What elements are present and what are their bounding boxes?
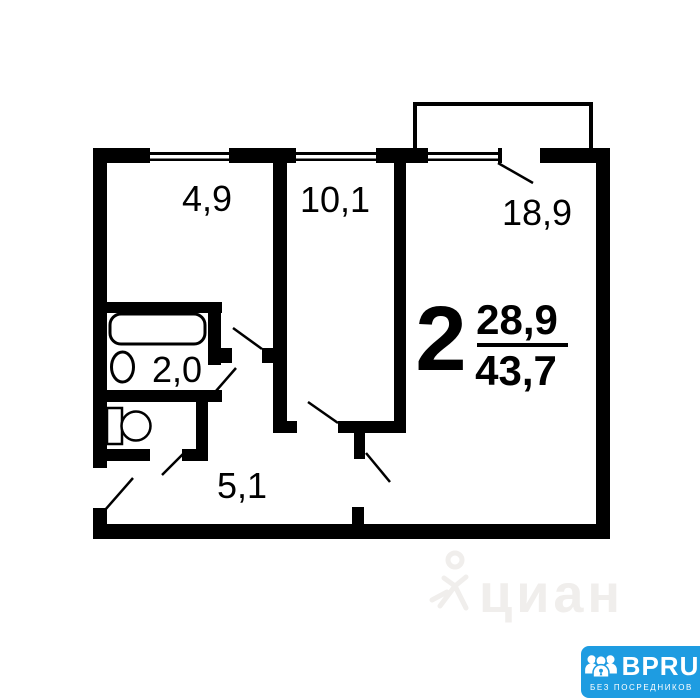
flat-type-number: 2 [415,288,466,390]
balcony-outline [415,104,591,150]
toilet-bowl [122,412,151,441]
living-area-value: 28,9 [476,296,558,343]
wall-rooms-divider [394,163,406,433]
wall-bathroom-bottom [103,390,222,402]
wall-toilet-bottom-left [103,449,150,461]
swing-balcony-door [498,163,533,183]
floorplan-image: 4,9 10,1 18,9 2,0 5,1 2 28,9 43,7 циан [0,0,700,700]
swing-kitchen-door [233,328,262,349]
room-area-large-room: 18,9 [502,192,572,233]
wall-room-small-bottom-left [273,421,297,433]
room-area-kitchen: 4,9 [182,178,232,219]
watermark-person-icon [432,553,466,608]
room-area-bathroom: 2,0 [152,349,202,390]
wall-bathroom-right [208,302,221,365]
swing-room-large-door [366,453,390,482]
swing-toilet-door [162,453,184,475]
brand-row: BPRU [584,652,700,680]
toilet-tank [107,408,122,444]
jamb-bathroom [221,348,232,363]
flat-summary: 2 28,9 43,7 [415,288,568,394]
brand-people-icon [584,652,618,680]
bathtub [110,314,205,344]
room-area-hallway: 5,1 [217,465,267,506]
wall-outer-bottom [93,524,610,539]
brand-badge: BPRU БЕЗ ПОСРЕДНИКОВ [581,646,700,698]
wall-kitchen-room [273,163,287,423]
wall-toilet-bottom-right [182,449,208,461]
swing-bathroom-door [216,368,236,391]
swing-room-small-door [308,402,338,423]
wall-outer-right [596,148,610,539]
floorplan-drawing: 4,9 10,1 18,9 2,0 5,1 2 28,9 43,7 циан [0,0,700,700]
watermark-text: циан [479,564,624,624]
watermark: циан [432,553,624,624]
jamb-corridor-right [262,348,273,363]
sink [112,352,134,382]
brand-title: BPRU [622,653,700,679]
wall-hall-stub-upper [354,433,365,459]
swing-entrance-door [105,478,133,510]
balcony-door-opening [502,148,540,163]
total-area-value: 43,7 [475,347,557,394]
brand-subtitle: БЕЗ ПОСРЕДНИКОВ [590,683,693,692]
wall-hall-stub-lower [352,507,364,524]
wall-bathroom-top [93,302,222,313]
room-area-small-room: 10,1 [300,179,370,220]
